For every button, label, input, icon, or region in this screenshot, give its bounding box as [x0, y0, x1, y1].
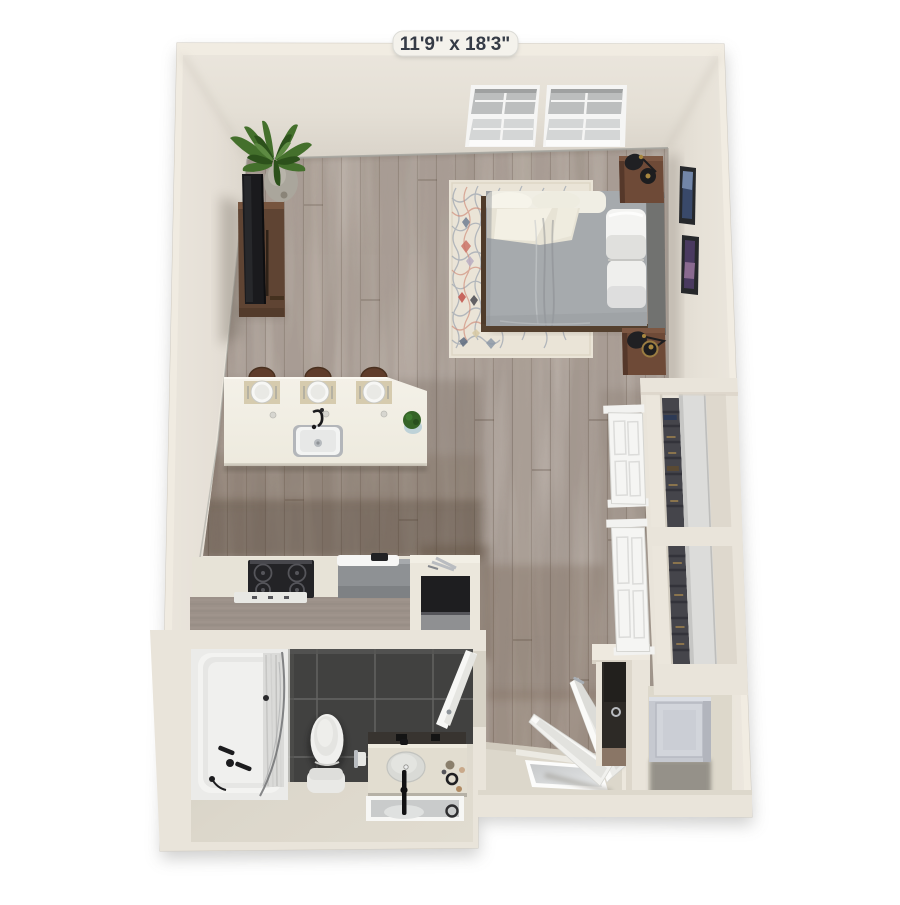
svg-text:11'9" x 18'3": 11'9" x 18'3" [400, 34, 511, 55]
